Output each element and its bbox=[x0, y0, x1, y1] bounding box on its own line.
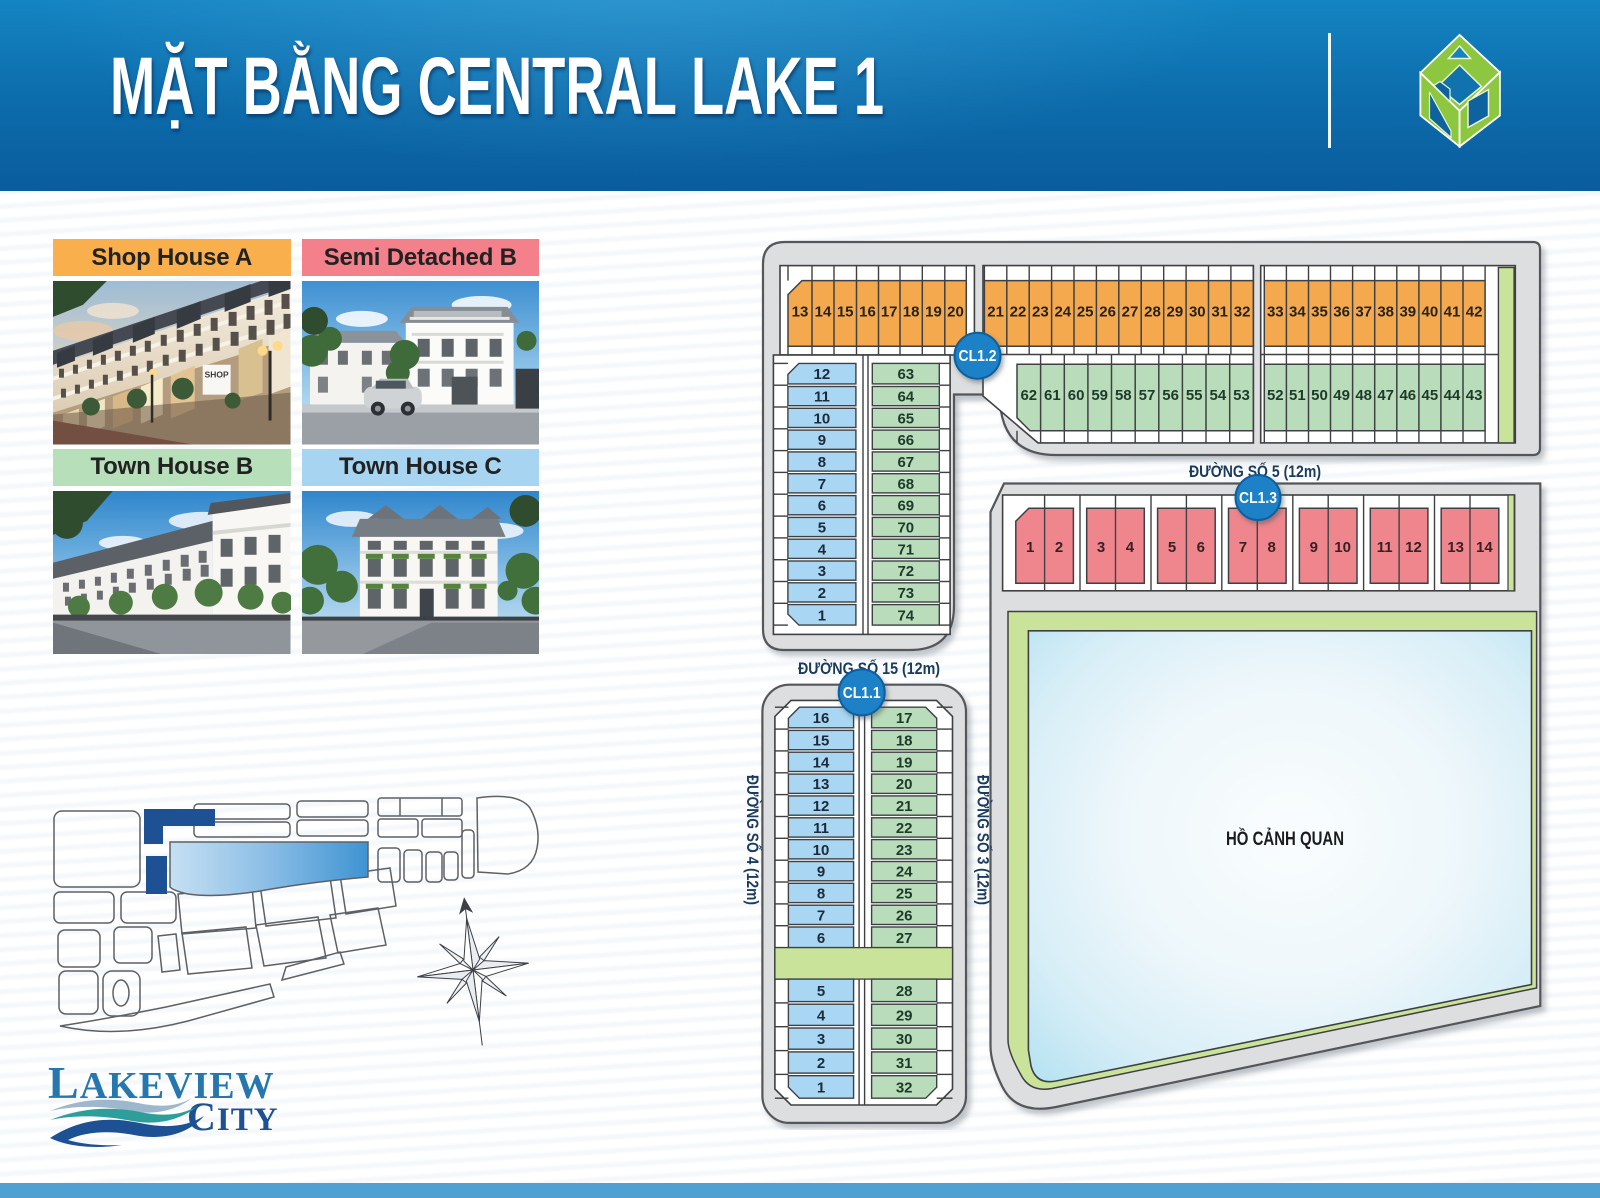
svg-text:19: 19 bbox=[925, 304, 942, 321]
svg-text:55: 55 bbox=[1186, 387, 1203, 404]
svg-text:25: 25 bbox=[1077, 304, 1094, 321]
svg-text:49: 49 bbox=[1333, 387, 1350, 404]
svg-text:23: 23 bbox=[1032, 304, 1049, 321]
svg-text:8: 8 bbox=[817, 886, 825, 903]
svg-text:26: 26 bbox=[896, 907, 913, 924]
svg-text:2: 2 bbox=[818, 585, 826, 602]
svg-text:15: 15 bbox=[813, 733, 830, 750]
svg-text:73: 73 bbox=[897, 585, 914, 602]
svg-text:71: 71 bbox=[897, 541, 914, 558]
svg-text:13: 13 bbox=[813, 776, 830, 793]
svg-text:9: 9 bbox=[818, 432, 826, 449]
svg-text:46: 46 bbox=[1399, 387, 1416, 404]
svg-text:28: 28 bbox=[1144, 304, 1161, 321]
svg-text:61: 61 bbox=[1044, 387, 1061, 404]
svg-text:12: 12 bbox=[1405, 539, 1422, 556]
svg-text:66: 66 bbox=[897, 432, 914, 449]
svg-text:69: 69 bbox=[897, 498, 914, 515]
svg-text:16: 16 bbox=[859, 304, 876, 321]
svg-text:5: 5 bbox=[818, 520, 826, 537]
svg-text:31: 31 bbox=[1211, 304, 1228, 321]
svg-text:56: 56 bbox=[1162, 387, 1179, 404]
svg-text:14: 14 bbox=[815, 304, 832, 321]
svg-text:27: 27 bbox=[896, 930, 913, 947]
svg-text:13: 13 bbox=[1447, 539, 1464, 556]
svg-text:11: 11 bbox=[1377, 539, 1393, 556]
svg-text:6: 6 bbox=[818, 498, 826, 515]
svg-text:1: 1 bbox=[818, 607, 826, 624]
svg-text:63: 63 bbox=[897, 366, 914, 383]
svg-text:30: 30 bbox=[896, 1031, 913, 1048]
svg-text:16: 16 bbox=[813, 710, 830, 727]
svg-text:4: 4 bbox=[817, 1007, 826, 1024]
svg-text:17: 17 bbox=[896, 710, 913, 727]
svg-text:25: 25 bbox=[896, 886, 913, 903]
svg-text:7: 7 bbox=[817, 907, 825, 924]
svg-text:6: 6 bbox=[1197, 539, 1205, 556]
svg-text:21: 21 bbox=[987, 304, 1004, 321]
svg-text:67: 67 bbox=[897, 454, 914, 471]
svg-text:35: 35 bbox=[1311, 304, 1328, 321]
svg-text:58: 58 bbox=[1115, 387, 1132, 404]
svg-text:28: 28 bbox=[896, 983, 913, 1000]
svg-text:20: 20 bbox=[947, 304, 964, 321]
svg-text:42: 42 bbox=[1466, 304, 1483, 321]
svg-text:18: 18 bbox=[903, 304, 920, 321]
svg-text:38: 38 bbox=[1377, 304, 1394, 321]
svg-text:45: 45 bbox=[1422, 387, 1439, 404]
svg-text:13: 13 bbox=[792, 304, 809, 321]
svg-text:24: 24 bbox=[1054, 304, 1071, 321]
svg-text:6: 6 bbox=[817, 930, 825, 947]
svg-text:7: 7 bbox=[818, 476, 826, 493]
svg-text:1: 1 bbox=[817, 1079, 825, 1096]
svg-text:29: 29 bbox=[1167, 304, 1184, 321]
svg-text:9: 9 bbox=[817, 864, 825, 881]
svg-text:12: 12 bbox=[813, 798, 830, 815]
svg-text:4: 4 bbox=[1126, 539, 1135, 556]
svg-text:32: 32 bbox=[896, 1079, 913, 1096]
svg-text:CL1.3: CL1.3 bbox=[1239, 490, 1277, 507]
svg-text:72: 72 bbox=[897, 563, 914, 580]
svg-text:64: 64 bbox=[897, 389, 914, 406]
svg-text:20: 20 bbox=[896, 776, 913, 793]
svg-text:32: 32 bbox=[1234, 304, 1251, 321]
svg-text:4: 4 bbox=[818, 541, 827, 558]
svg-text:37: 37 bbox=[1355, 304, 1372, 321]
svg-text:57: 57 bbox=[1139, 387, 1156, 404]
svg-text:39: 39 bbox=[1399, 304, 1416, 321]
svg-text:70: 70 bbox=[897, 520, 914, 537]
svg-text:59: 59 bbox=[1091, 387, 1108, 404]
svg-text:62: 62 bbox=[1020, 387, 1037, 404]
svg-text:19: 19 bbox=[896, 754, 913, 771]
svg-text:60: 60 bbox=[1068, 387, 1085, 404]
svg-text:21: 21 bbox=[896, 798, 913, 815]
svg-text:SHOP: SHOP bbox=[205, 370, 229, 380]
svg-text:30: 30 bbox=[1189, 304, 1206, 321]
svg-text:15: 15 bbox=[837, 304, 854, 321]
svg-text:5: 5 bbox=[817, 983, 825, 1000]
svg-text:8: 8 bbox=[1268, 539, 1276, 556]
svg-text:2: 2 bbox=[1055, 539, 1063, 556]
svg-text:24: 24 bbox=[896, 864, 913, 881]
svg-text:40: 40 bbox=[1422, 304, 1439, 321]
svg-text:47: 47 bbox=[1377, 387, 1394, 404]
svg-text:2: 2 bbox=[817, 1055, 825, 1072]
svg-text:41: 41 bbox=[1444, 304, 1461, 321]
svg-text:8: 8 bbox=[818, 454, 826, 471]
svg-text:54: 54 bbox=[1210, 387, 1227, 404]
svg-text:10: 10 bbox=[814, 410, 831, 427]
svg-text:3: 3 bbox=[817, 1031, 825, 1048]
svg-text:CL1.1: CL1.1 bbox=[843, 685, 881, 702]
svg-text:34: 34 bbox=[1289, 304, 1306, 321]
svg-text:36: 36 bbox=[1333, 304, 1350, 321]
svg-text:3: 3 bbox=[818, 563, 826, 580]
svg-text:23: 23 bbox=[896, 842, 913, 859]
svg-text:48: 48 bbox=[1355, 387, 1372, 404]
svg-text:31: 31 bbox=[896, 1055, 913, 1072]
svg-text:5: 5 bbox=[1168, 539, 1176, 556]
svg-text:50: 50 bbox=[1311, 387, 1328, 404]
svg-text:53: 53 bbox=[1233, 387, 1250, 404]
svg-text:ĐƯỜNG SỐ 4 (12m): ĐƯỜNG SỐ 4 (12m) bbox=[743, 775, 763, 905]
svg-text:18: 18 bbox=[896, 733, 913, 750]
svg-text:29: 29 bbox=[896, 1007, 913, 1024]
svg-text:68: 68 bbox=[897, 476, 914, 493]
svg-text:52: 52 bbox=[1267, 387, 1284, 404]
svg-text:11: 11 bbox=[813, 820, 829, 837]
svg-text:27: 27 bbox=[1122, 304, 1139, 321]
svg-text:22: 22 bbox=[1010, 304, 1027, 321]
svg-text:12: 12 bbox=[814, 366, 831, 383]
svg-text:7: 7 bbox=[1239, 539, 1247, 556]
svg-text:14: 14 bbox=[813, 754, 830, 771]
svg-text:9: 9 bbox=[1310, 539, 1318, 556]
svg-text:33: 33 bbox=[1267, 304, 1284, 321]
svg-text:HỒ CẢNH QUAN: HỒ CẢNH QUAN bbox=[1226, 828, 1344, 850]
svg-text:74: 74 bbox=[897, 607, 914, 624]
svg-text:ĐƯỜNG SỐ 3 (12m): ĐƯỜNG SỐ 3 (12m) bbox=[974, 775, 994, 905]
svg-text:44: 44 bbox=[1444, 387, 1461, 404]
svg-text:14: 14 bbox=[1476, 539, 1493, 556]
svg-text:22: 22 bbox=[896, 820, 913, 837]
svg-text:3: 3 bbox=[1097, 539, 1105, 556]
svg-text:1: 1 bbox=[1026, 539, 1034, 556]
svg-text:11: 11 bbox=[814, 389, 830, 406]
svg-text:10: 10 bbox=[1334, 539, 1351, 556]
svg-text:10: 10 bbox=[813, 842, 830, 859]
svg-text:51: 51 bbox=[1289, 387, 1306, 404]
svg-text:17: 17 bbox=[881, 304, 898, 321]
svg-text:CL1.2: CL1.2 bbox=[959, 348, 997, 365]
svg-text:26: 26 bbox=[1099, 304, 1116, 321]
svg-text:65: 65 bbox=[897, 410, 914, 427]
svg-text:43: 43 bbox=[1466, 387, 1483, 404]
